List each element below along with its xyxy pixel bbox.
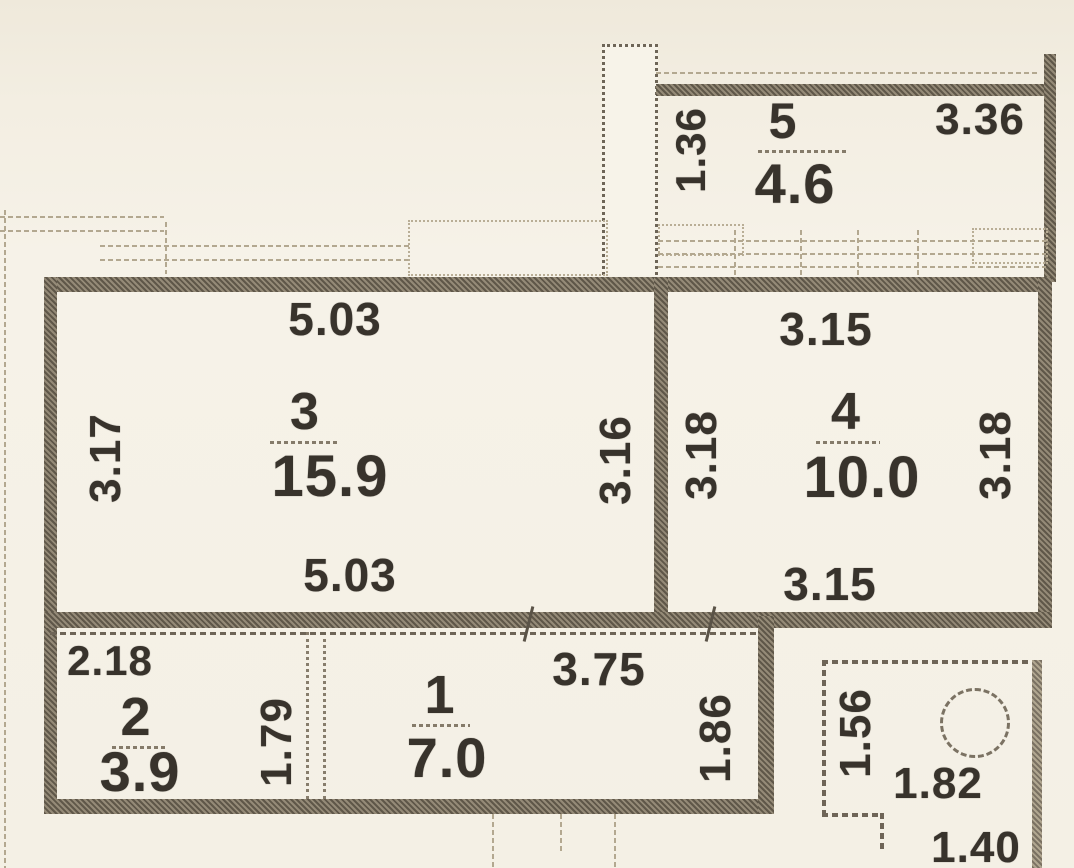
bathroom-dim-width: 1.82 <box>873 762 1003 806</box>
left-scan-edge-line <box>4 210 6 868</box>
below-wall-stub-1 <box>492 814 494 868</box>
wall-main-top <box>44 277 1052 292</box>
room3-dim-top: 5.03 <box>270 296 400 342</box>
wall-left-outer <box>44 277 57 814</box>
room3-window-line-1 <box>100 245 410 247</box>
bathroom-dim-bottom: 1.40 <box>911 826 1041 868</box>
room3-window-line-2 <box>100 259 410 261</box>
wall-top-protruding-strip <box>602 44 658 275</box>
room5-window-mullion-4 <box>917 230 919 282</box>
room4-number: 4 <box>821 386 871 438</box>
wall-bathroom-step-vertical <box>880 813 884 853</box>
room4-number-underline <box>816 441 880 444</box>
room5-dim-top-right: 3.36 <box>915 98 1045 142</box>
room5-window-mullion-2 <box>800 230 802 282</box>
room5-window-line-3 <box>658 266 1046 268</box>
room3-window-end-cap <box>165 222 167 274</box>
room3-dim-bottom: 5.03 <box>285 552 415 598</box>
room4-area: 10.0 <box>782 449 942 507</box>
room1-number: 1 <box>415 668 465 722</box>
wall-room4-right <box>1038 277 1052 628</box>
floor-plan: 1.36 5 4.6 3.36 5.03 3 15.9 5.03 3.17 3.… <box>0 0 1074 868</box>
room1-dim-right: 1.86 <box>694 683 740 793</box>
wall-partition-room2-room1 <box>306 632 326 799</box>
wall-bathroom-step-horizontal <box>822 813 884 817</box>
room4-dim-left: 3.18 <box>680 400 726 510</box>
room4-dim-bottom: 3.15 <box>765 561 895 607</box>
balcony-line-1 <box>0 216 164 218</box>
room5-parapet-line <box>656 72 1040 74</box>
room3-number: 3 <box>280 386 330 438</box>
wall-divider-room3-room4 <box>654 277 668 628</box>
room3-dim-right: 3.16 <box>594 405 640 515</box>
room5-area: 4.6 <box>730 156 860 212</box>
room1-area: 7.0 <box>382 730 512 786</box>
room3-window-box <box>408 220 608 276</box>
room4-dim-top: 3.15 <box>761 306 891 352</box>
wall-bathroom-top <box>822 660 1036 664</box>
room2-area: 3.9 <box>75 744 205 800</box>
room5-window-right-box <box>972 228 1048 264</box>
below-wall-stub-3 <box>614 814 616 868</box>
room3-area: 15.9 <box>255 448 405 506</box>
wall-room1-right <box>758 616 774 814</box>
wall-bathroom-left <box>822 660 826 816</box>
room1-top-dashed-line <box>50 632 758 635</box>
room5-window-line-1 <box>658 240 1046 242</box>
room2-dim-top: 2.18 <box>48 640 172 682</box>
room2-number: 2 <box>111 690 161 744</box>
room1-dim-top: 3.75 <box>534 646 664 692</box>
column-circle <box>940 688 1010 758</box>
room5-window-mullion-1 <box>734 230 736 282</box>
room4-dim-right: 3.18 <box>974 400 1020 510</box>
below-wall-stub-2 <box>560 814 562 854</box>
room3-dim-left: 3.17 <box>84 403 130 513</box>
room5-window-mullion-3 <box>857 230 859 282</box>
room5-window-line-2 <box>658 253 1046 255</box>
balcony-line-2 <box>0 230 164 232</box>
wall-mid-horizontal <box>44 612 1052 628</box>
room5-dim-left: 1.36 <box>670 105 714 195</box>
room5-number: 5 <box>755 96 811 146</box>
room2-dim-right: 1.79 <box>255 687 301 797</box>
